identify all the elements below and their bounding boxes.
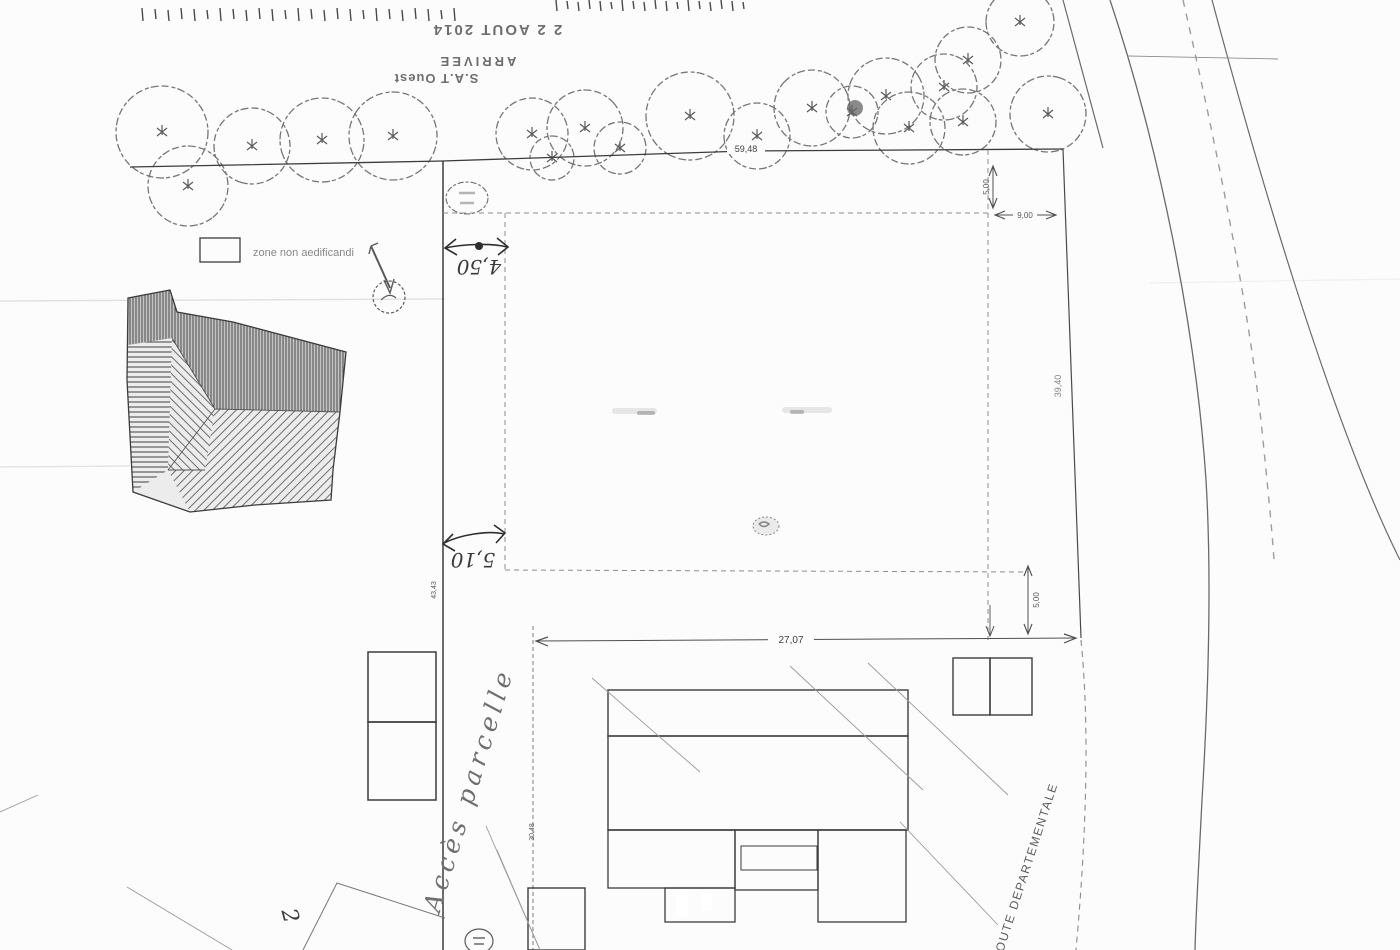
tree-cross-icon — [388, 129, 398, 140]
outbuilding-left — [368, 652, 436, 800]
tree-cross-icon — [1043, 107, 1053, 118]
hedge-tick — [732, 1, 733, 11]
boundary-hedge-ticks — [142, 0, 744, 21]
hedge-tick — [207, 10, 208, 19]
hedge-tick — [556, 0, 557, 11]
reception-stamp: 2 2 AOUT 2014 ARRIVEE S.A.T Ouest — [394, 21, 563, 86]
building-envelope-dashed — [443, 150, 1028, 640]
access-circled-mark — [465, 929, 493, 950]
hedge-tick — [633, 1, 634, 9]
parcel-number-label: 2 — [275, 905, 303, 926]
tree-cross-icon — [157, 125, 167, 136]
dim-front-setback: 4,50 — [445, 238, 508, 279]
hedge-tick — [181, 8, 182, 19]
tree-cross-icon — [807, 101, 817, 112]
dim-ne-horizontal-label: 9,00 — [1017, 211, 1033, 220]
legend: zone non aedificandi — [200, 238, 354, 262]
terrain-line — [900, 822, 998, 925]
hedge-tick — [363, 10, 364, 19]
tree-cross-icon — [752, 129, 762, 140]
tree-row — [116, 0, 1095, 242]
hedge-tick — [688, 0, 689, 11]
dim-access-length-label: 30,48 — [529, 823, 536, 841]
hedge-tick — [743, 2, 744, 9]
hedge-tick — [567, 1, 568, 9]
tree-cross-icon — [963, 53, 973, 64]
handwritten-labels: Accès parcelle 2 — [275, 664, 519, 950]
dim-right-boundary-label: 39,40 — [1053, 375, 1063, 398]
east-boundary-dashed-curve — [1076, 640, 1086, 950]
road-label: ROUTE DEPARTEMENTALE — [989, 781, 1060, 950]
dim-front-setback-label: 4,50 — [456, 255, 502, 279]
terrain-line — [497, 850, 540, 950]
hedge-tick — [142, 8, 143, 21]
dim-se-vertical-label: 5,00 — [1032, 592, 1041, 608]
site-plan-drawing: 2 2 AOUT 2014 ARRIVEE S.A.T Ouest zone n… — [0, 0, 1400, 950]
tree-cross-icon — [615, 141, 625, 152]
hedge-tick — [246, 10, 247, 21]
hedge-tick — [168, 10, 169, 21]
terrain-line — [790, 666, 923, 790]
terrain-line — [0, 795, 38, 812]
tree-cross-icon — [527, 127, 537, 138]
departmental-road: ROUTE DEPARTEMENTALE — [989, 0, 1400, 950]
tree-cross-icon — [685, 109, 695, 120]
stamp-service: S.A.T Ouest — [394, 71, 479, 86]
legend-swatch — [200, 238, 240, 262]
hedge-tick — [402, 10, 403, 21]
tree-dark-blob — [847, 100, 863, 116]
illegible-marks — [446, 182, 832, 535]
hedge-tick — [324, 10, 325, 21]
garage-building — [953, 658, 1032, 715]
hedge-tick — [710, 2, 711, 11]
tree-cross-icon — [580, 121, 590, 132]
north-arrow-sketch — [369, 243, 405, 313]
stamp-arrivee: ARRIVEE — [438, 54, 517, 69]
tree-cross-icon — [1015, 15, 1025, 26]
hedge-tick — [589, 0, 590, 9]
hedge-tick — [655, 0, 656, 9]
hedge-tick — [622, 0, 623, 11]
hedge-tick — [259, 8, 260, 19]
hedge-tick — [600, 1, 601, 11]
hedge-tick — [441, 10, 442, 19]
hedge-tick — [376, 8, 377, 21]
terrain-line — [868, 663, 1008, 795]
dim-mid-setback: 5,10 — [443, 525, 505, 572]
dim-ne-corner: 5,00 9,00 — [982, 166, 1056, 220]
hedge-tick — [611, 2, 612, 9]
hedge-tick — [220, 8, 221, 21]
hedge-tick — [233, 9, 234, 19]
main-building — [608, 690, 908, 922]
neighbor-roof-building — [127, 290, 346, 512]
shed-building — [528, 888, 585, 950]
tree-cross-icon — [881, 89, 891, 100]
dim-top-boundary-label: 59,48 — [735, 144, 758, 154]
access-label: Accès parcelle — [417, 664, 520, 917]
hedge-tick — [337, 8, 338, 19]
hedge-tick — [428, 9, 429, 21]
hedge-tick — [389, 9, 390, 19]
dim-left-boundary-label: 43,43 — [431, 581, 438, 599]
hedge-tick — [721, 0, 722, 9]
hedge-tick — [272, 9, 273, 21]
hedge-tick — [578, 2, 579, 11]
dim-plot-width: 27,07 — [536, 632, 1076, 646]
hedge-tick — [311, 9, 312, 19]
stamp-date: 2 2 AOUT 2014 — [432, 21, 563, 38]
dim-plot-width-label: 27,07 — [778, 635, 803, 646]
tree-cross-icon — [183, 179, 193, 190]
legend-label: zone non aedificandi — [253, 247, 354, 259]
hedge-tick — [699, 1, 700, 9]
hedge-tick — [677, 2, 678, 9]
dim-ne-vertical-label: 5,00 — [982, 179, 991, 195]
east-boundary-line — [1063, 149, 1081, 638]
hedge-tick — [155, 9, 156, 19]
hedge-tick — [454, 8, 455, 21]
hedge-tick — [350, 9, 351, 21]
tree-cross-icon — [317, 133, 327, 144]
hedge-tick — [194, 9, 195, 21]
dim-se-vertical: 5,00 — [986, 566, 1041, 636]
hedge-tick — [644, 2, 645, 11]
tree-cross-icon — [247, 139, 257, 150]
tree — [985, 0, 1054, 57]
hedge-tick — [285, 10, 286, 19]
hedge-tick — [666, 1, 667, 11]
hedge-tick — [298, 8, 299, 21]
hedge-tick — [415, 8, 416, 19]
dim-mid-setback-label: 5,10 — [450, 548, 495, 572]
terrain-line — [127, 887, 232, 950]
